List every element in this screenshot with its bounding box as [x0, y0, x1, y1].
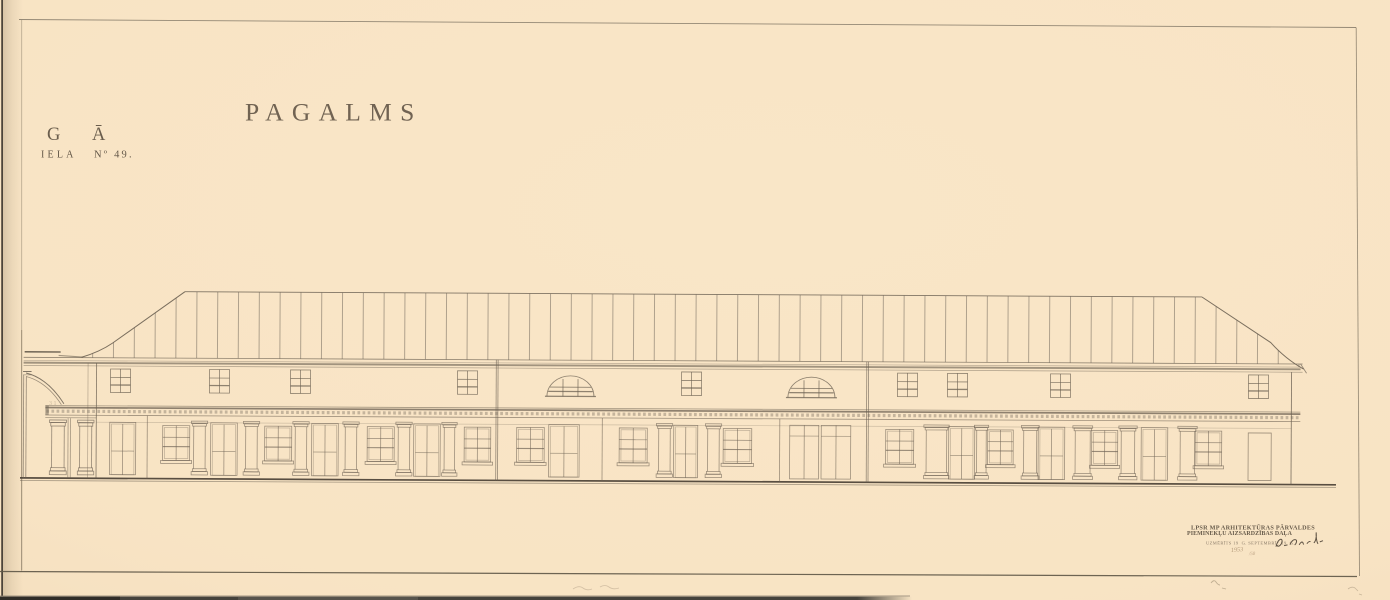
- svg-text:3 1: 3 1: [49, 401, 57, 407]
- svg-text:1953: 1953: [1231, 546, 1244, 554]
- svg-text:Ā: Ā: [92, 125, 106, 145]
- svg-text:G: G: [47, 125, 60, 145]
- svg-text:/58: /58: [1248, 552, 1256, 558]
- svg-text:Nº 49.: Nº 49.: [94, 150, 134, 161]
- svg-text:PIEMINEKĻU AIZSARDZĪBAS DAĻA: PIEMINEKĻU AIZSARDZĪBAS DAĻA: [1187, 530, 1293, 537]
- svg-text:IELA: IELA: [41, 150, 77, 161]
- svg-text:PAGALMS: PAGALMS: [245, 98, 423, 127]
